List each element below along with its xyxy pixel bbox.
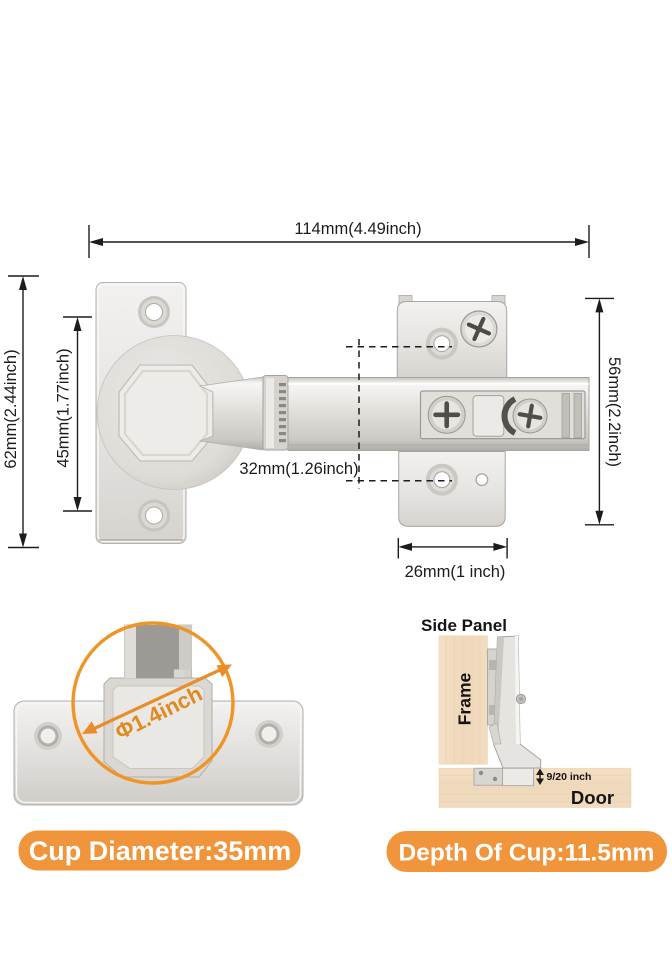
svg-text:56mm(2.2inch): 56mm(2.2inch) xyxy=(605,357,623,467)
svg-text:Door: Door xyxy=(571,787,614,808)
svg-text:26mm(1 inch): 26mm(1 inch) xyxy=(405,563,506,581)
svg-text:9/20 inch: 9/20 inch xyxy=(547,771,592,783)
svg-text:32mm(1.26inch): 32mm(1.26inch) xyxy=(239,460,358,478)
svg-text:114mm(4.49inch): 114mm(4.49inch) xyxy=(294,220,421,238)
svg-text:62mm(2.44inch): 62mm(2.44inch) xyxy=(2,349,20,468)
svg-text:45mm(1.77inch): 45mm(1.77inch) xyxy=(55,348,73,467)
svg-text:Cup Diameter:35mm: Cup Diameter:35mm xyxy=(29,836,292,866)
svg-text:Side Panel: Side Panel xyxy=(421,616,507,635)
svg-text:Depth Of Cup:11.5mm: Depth Of Cup:11.5mm xyxy=(399,840,655,867)
svg-text:Frame: Frame xyxy=(455,672,475,725)
